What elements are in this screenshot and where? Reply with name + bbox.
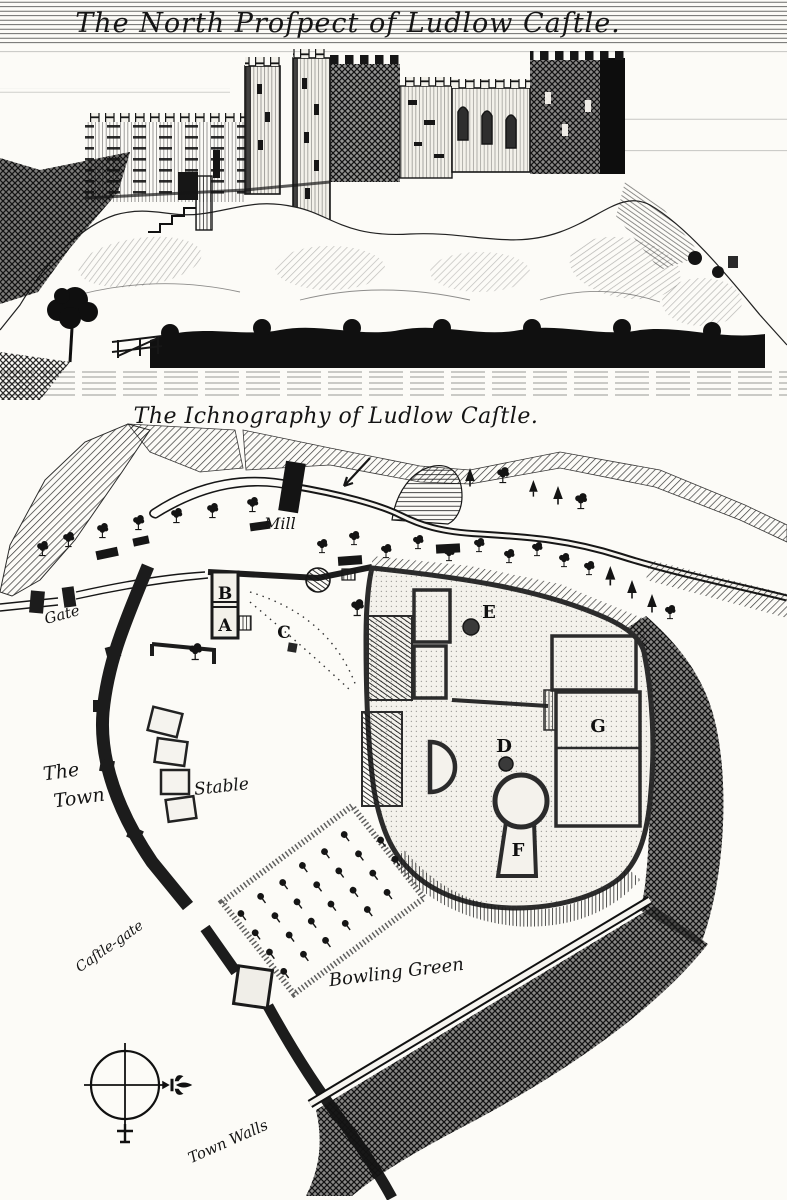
ichnography-title: The Ichnography of Ludlow Caſtle. bbox=[134, 404, 539, 429]
tree-canopy bbox=[54, 288, 70, 304]
marker-c-feature bbox=[287, 642, 297, 652]
window bbox=[545, 92, 551, 104]
window bbox=[585, 100, 591, 112]
wall-gate-arch bbox=[178, 172, 198, 200]
wall-turret bbox=[93, 700, 107, 712]
window bbox=[304, 132, 309, 143]
hillside-hut bbox=[728, 256, 738, 268]
gothic-window bbox=[482, 111, 492, 144]
tree-trunk bbox=[70, 328, 72, 362]
hedge-bush bbox=[161, 324, 179, 342]
hill-bush bbox=[712, 266, 724, 278]
window bbox=[302, 78, 307, 89]
window bbox=[314, 160, 319, 171]
window bbox=[258, 140, 263, 150]
window bbox=[257, 84, 262, 94]
round-bastion bbox=[306, 568, 330, 592]
window bbox=[265, 112, 270, 122]
marker-d: D bbox=[496, 736, 512, 757]
marker-g: G bbox=[590, 716, 605, 737]
battlements bbox=[245, 57, 280, 66]
ludlow-castle-engraving: The North Proſpect of Ludlow Caſtle. The… bbox=[0, 0, 787, 1200]
marker-b: B bbox=[218, 584, 232, 604]
gothic-window bbox=[458, 107, 468, 140]
marker-e: E bbox=[482, 602, 496, 623]
marker-c: C bbox=[277, 623, 291, 643]
tree-canopy bbox=[59, 307, 81, 329]
window bbox=[305, 188, 310, 199]
battlements bbox=[400, 77, 452, 86]
engraving-page: The North Proſpect of Ludlow Caſtle. The… bbox=[0, 0, 787, 1200]
masonry-patch bbox=[408, 100, 417, 105]
hedge-bush bbox=[433, 319, 451, 337]
northwest-tower-block bbox=[368, 616, 412, 700]
hill-bush bbox=[688, 251, 702, 265]
marker-a: A bbox=[217, 616, 232, 636]
hedge-bush bbox=[613, 319, 631, 337]
masonry-patch bbox=[414, 142, 422, 146]
window bbox=[562, 124, 568, 136]
sky-streak bbox=[0, 48, 787, 54]
stable-room bbox=[161, 770, 189, 794]
hedge-bush bbox=[343, 319, 361, 337]
marker-f: F bbox=[512, 840, 525, 861]
gothic-window bbox=[506, 115, 516, 148]
ruin-pillar bbox=[213, 150, 220, 178]
wall-turret bbox=[99, 759, 115, 773]
marker-d-feature bbox=[499, 757, 513, 771]
west-tower-block bbox=[362, 712, 402, 806]
battlements bbox=[85, 113, 245, 122]
stair-block bbox=[544, 690, 556, 730]
masonry-patch bbox=[434, 154, 444, 158]
battlements bbox=[293, 49, 330, 58]
label-mill: Mill bbox=[263, 514, 296, 533]
marker-e-feature bbox=[463, 619, 479, 635]
dark-wall-tone bbox=[330, 64, 400, 182]
hedge-bush bbox=[523, 319, 541, 337]
ruined-wall bbox=[196, 176, 212, 230]
window bbox=[314, 104, 319, 115]
riverside-house bbox=[338, 555, 363, 566]
mid-wall-texture bbox=[400, 86, 452, 178]
gatehouse-steps bbox=[239, 616, 251, 630]
round-chapel bbox=[495, 775, 547, 827]
tree-canopy bbox=[78, 302, 98, 322]
masonry-patch bbox=[424, 120, 435, 125]
hedge-row bbox=[150, 328, 765, 368]
riverside-house bbox=[436, 543, 460, 553]
postern-gate bbox=[342, 569, 355, 580]
wall-tower-square bbox=[234, 966, 273, 1008]
battlements bbox=[452, 79, 530, 88]
stable-room bbox=[166, 796, 197, 822]
corner-tower-shadow-face bbox=[600, 58, 625, 174]
battlements bbox=[530, 51, 625, 60]
hill-hatch bbox=[430, 252, 530, 292]
sky-streak bbox=[0, 88, 230, 93]
hill-hatch bbox=[275, 246, 385, 290]
hill-hatch bbox=[662, 278, 742, 326]
battlements bbox=[330, 55, 400, 64]
hedge-bush bbox=[703, 322, 721, 340]
stable-room bbox=[154, 738, 187, 766]
prospect-title: The North Proſpect of Ludlow Caſtle. bbox=[75, 8, 621, 39]
tower-west-shadow bbox=[245, 66, 251, 194]
hedge-bush bbox=[253, 319, 271, 337]
